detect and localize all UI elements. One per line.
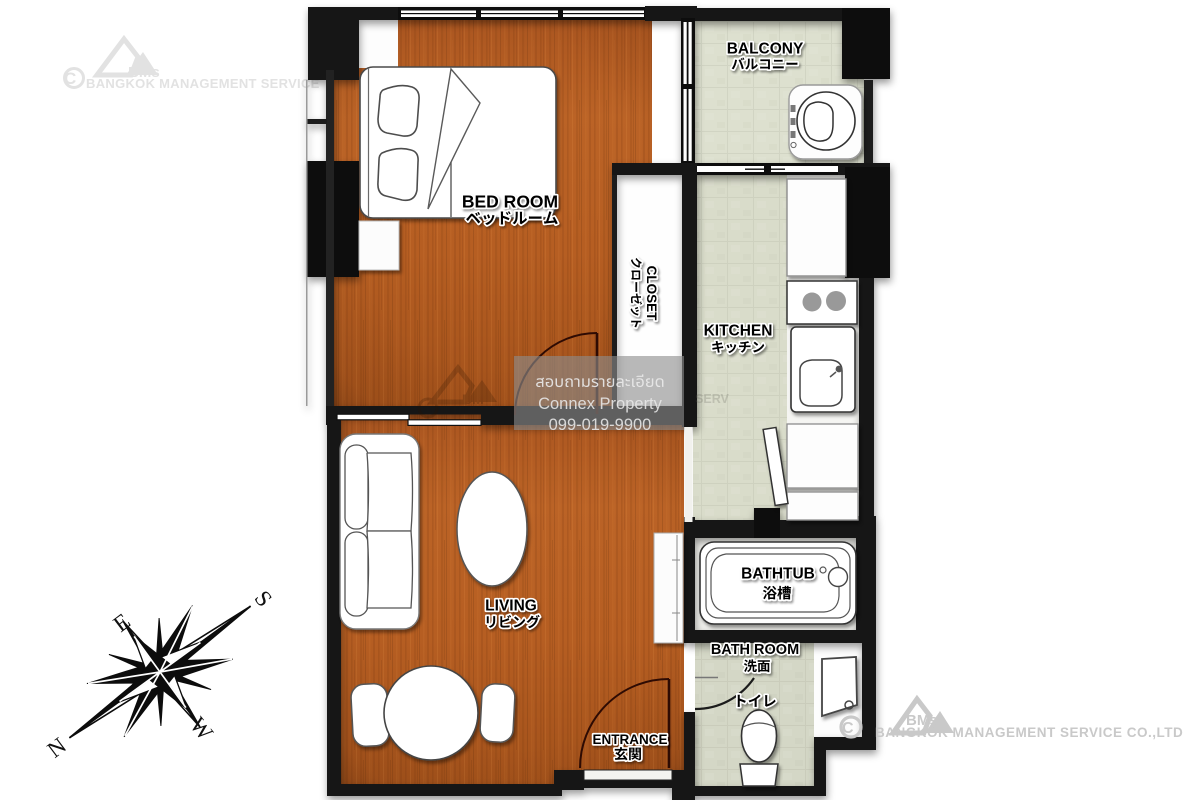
svg-text:BATH ROOM: BATH ROOM (711, 642, 799, 658)
svg-text:LIVING: LIVING (485, 598, 537, 615)
svg-text:099-019-9900: 099-019-9900 (549, 416, 652, 434)
svg-text:BM: BM (462, 391, 484, 407)
svg-text:Connex Property: Connex Property (538, 395, 663, 413)
svg-text:BED ROOM: BED ROOM (462, 191, 558, 211)
svg-text:ENTRANCE: ENTRANCE (592, 732, 667, 747)
svg-text:KITCHEN: KITCHEN (704, 323, 773, 340)
svg-text:BALCONY: BALCONY (727, 41, 804, 58)
svg-text:BANGKOK MANAGEMENT SERVICE: BANGKOK MANAGEMENT SERVICE (86, 76, 320, 91)
svg-text:SERV: SERV (695, 392, 729, 406)
svg-text:C: C (842, 720, 854, 737)
svg-text:BATHTUB: BATHTUB (741, 566, 815, 583)
svg-text:CLOSET: CLOSET (644, 266, 659, 322)
svg-text:C: C (64, 69, 76, 88)
svg-text:BANGKOK MANAGEMENT SERVICE CO.: BANGKOK MANAGEMENT SERVICE CO.,LTD (875, 725, 1183, 740)
